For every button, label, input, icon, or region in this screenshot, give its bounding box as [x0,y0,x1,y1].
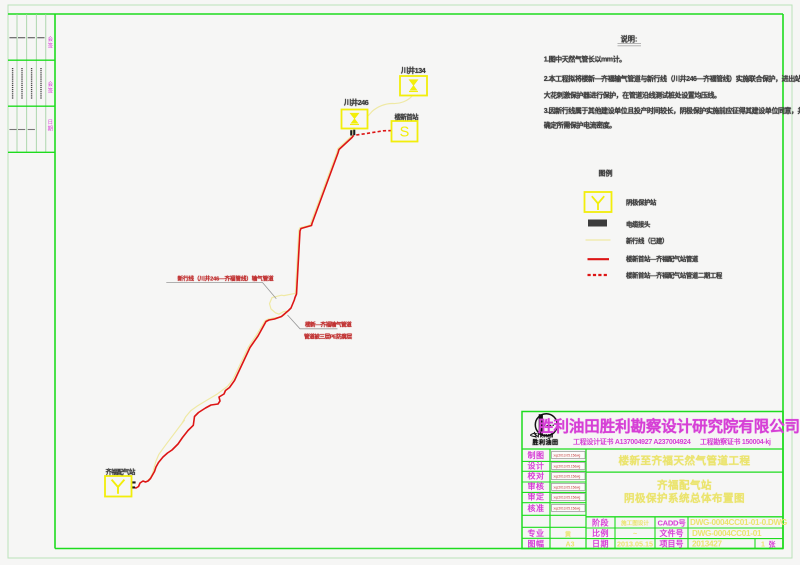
svg-text:1.图中天然气管长以mm计。: 1.图中天然气管长以mm计。 [544,55,626,64]
svg-text:2013.05.15: 2013.05.15 [617,539,653,548]
svg-text:楼新至齐福天然气管道工程: 楼新至齐福天然气管道工程 [619,454,751,467]
svg-text:审定: 审定 [528,492,545,502]
svg-text:齐福配气站: 齐福配气站 [657,478,712,491]
svg-text:专业: 专业 [528,528,545,538]
svg-text:签: 签 [48,41,54,49]
svg-text:S: S [400,125,410,141]
svg-text:阶段: 阶段 [592,518,609,528]
svg-text:楼新—齐福输气管道: 楼新—齐福输气管道 [305,321,352,329]
svg-text:川井134: 川井134 [400,66,427,75]
svg-text:签: 签 [48,86,54,94]
svg-text:DWG-0004CC01-01: DWG-0004CC01-01 [692,529,762,538]
svg-text:阴极保护站: 阴极保护站 [626,197,657,206]
svg-text:楼新首站—齐福配气站管道: 楼新首站—齐福配气站管道 [626,254,699,263]
svg-text:3.因新行线属于其他建设单位且投产时间较长，阴极保护实施前应: 3.因新行线属于其他建设单位且投产时间较长，阴极保护实施前应征得其建设单位同意，… [544,106,800,115]
svg-text:图幅: 图幅 [528,539,545,549]
svg-text:DWG-0004CC01-01-0.DWG: DWG-0004CC01-01-0.DWG [690,518,787,527]
svg-text:A3: A3 [566,541,575,548]
svg-text:xqz2013.05.15dwg: xqz2013.05.15dwg [554,506,581,510]
svg-text:1: 1 [761,541,765,548]
svg-text:电缆接头: 电缆接头 [626,220,651,229]
svg-text:xqz2013.05.15dwg: xqz2013.05.15dwg [554,475,581,479]
svg-text:图例: 图例 [599,169,613,178]
svg-text:楼新首站—齐福配气站管道二期工程: 楼新首站—齐福配气站管道二期工程 [626,271,723,280]
svg-text:工程设计证书 A137004927 A237004924: 工程设计证书 A137004927 A237004924 [573,437,691,446]
svg-text:2.本工程拟将楼新—齐福输气管道与新行线（川井246—齐福管: 2.本工程拟将楼新—齐福输气管道与新行线（川井246—齐福管线）实施联合保护，进… [544,74,800,83]
svg-text:会: 会 [48,35,54,43]
svg-text:大花刺激保护器进行保护，在管道沿线测试桩处设置均压线。: 大花刺激保护器进行保护，在管道沿线测试桩处设置均压线。 [544,91,721,100]
svg-text:胜利油田胜利勘察设计研究院有限公司: 胜利油田胜利勘察设计研究院有限公司 [538,417,800,436]
svg-text:黄: 黄 [565,531,572,539]
svg-text:说明:: 说明: [621,35,638,44]
svg-text:~: ~ [633,531,637,538]
svg-text:齐福配气站: 齐福配气站 [106,467,137,476]
svg-text:胜利油田: 胜利油田 [532,439,559,447]
svg-text:楼新首站: 楼新首站 [395,112,420,121]
svg-text:新行线（川井246—齐福管线）输气管道: 新行线（川井246—齐福管线）输气管道 [178,275,275,283]
svg-text:2013427: 2013427 [692,539,723,548]
svg-text:xqz2013.05.15dwg: xqz2013.05.15dwg [554,464,581,468]
svg-text:川井246: 川井246 [343,98,369,107]
svg-text:核准: 核准 [528,503,545,513]
svg-text:校对: 校对 [528,471,545,481]
svg-text:期: 期 [48,125,53,132]
svg-text:施工图设计: 施工图设计 [621,519,649,527]
svg-text:xqz2013.05.15dwg: xqz2013.05.15dwg [554,454,581,458]
svg-text:会: 会 [48,80,54,88]
svg-text:比例: 比例 [592,528,609,538]
svg-text:设计: 设计 [528,460,545,470]
svg-text:文件号: 文件号 [660,528,684,538]
svg-text:新行线（已建）: 新行线（已建） [626,236,668,245]
svg-text:阴极保护系统总体布置图: 阴极保护系统总体布置图 [624,492,745,505]
svg-text:日: 日 [48,119,53,126]
svg-text:工程勘察证书 150004-kj: 工程勘察证书 150004-kj [700,437,771,446]
svg-text:xqz2013.05.15dwg: xqz2013.05.15dwg [554,496,581,500]
svg-text:张: 张 [769,540,777,549]
svg-text:确定所需保护电流密度。: 确定所需保护电流密度。 [544,121,616,130]
svg-text:CADD号: CADD号 [657,519,686,528]
svg-text:审核: 审核 [528,481,545,491]
svg-text:xqz2013.05.15dwg: xqz2013.05.15dwg [554,485,581,489]
svg-text:管道被三层PE防腐层: 管道被三层PE防腐层 [304,333,353,341]
svg-text:制图: 制图 [528,450,545,460]
svg-text:项目号: 项目号 [660,540,684,549]
svg-text:日期: 日期 [592,539,609,549]
